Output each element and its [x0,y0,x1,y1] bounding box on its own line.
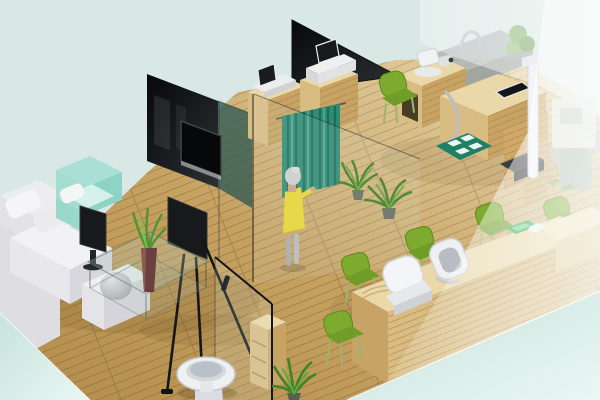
isometric-interior-render [0,0,600,400]
toilet [177,357,237,400]
scene-canvas [0,0,600,400]
